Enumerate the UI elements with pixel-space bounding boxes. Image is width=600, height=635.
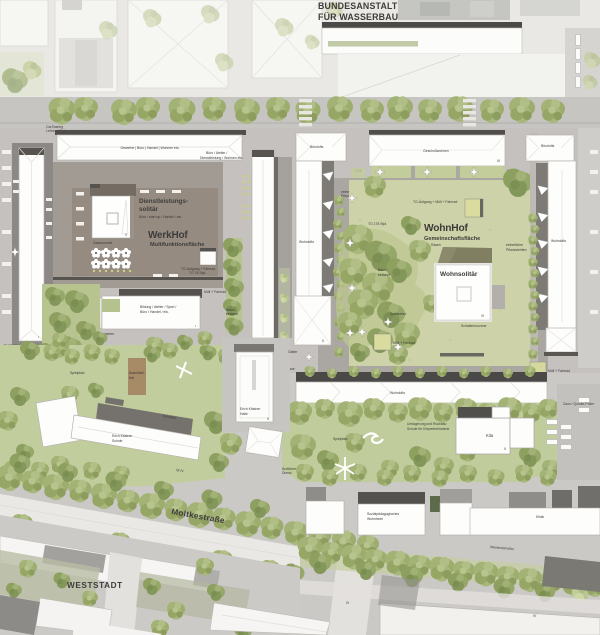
svg-text:WESTSTADT: WESTSTADT (67, 581, 123, 590)
svg-text:Bildung / Atelier / Sport /: Bildung / Atelier / Sport / (140, 305, 176, 309)
svg-text:solitär: solitär (139, 206, 158, 213)
svg-text:Spielwiese: Spielwiese (390, 312, 406, 316)
svg-text:Müll + Fahrrad: Müll + Fahrrad (548, 369, 570, 373)
svg-text:Halle: Halle (240, 412, 248, 416)
svg-text:WohnHof: WohnHof (424, 223, 468, 234)
svg-text:Erich Kästner: Erich Kästner (240, 407, 261, 411)
svg-text:Rasen: Rasen (431, 243, 441, 247)
svg-text:Baum-: Baum- (378, 268, 388, 272)
svg-text:Geschoßwohnen: Geschoßwohnen (423, 149, 449, 153)
svg-text:Schule für Körperbehinderte: Schule für Körperbehinderte (407, 427, 450, 431)
svg-text:Basketball-: Basketball- (129, 371, 145, 375)
svg-text:Dienst: Dienst (282, 471, 292, 475)
svg-text:TG 78 Stpl.: TG 78 Stpl. (189, 271, 206, 275)
svg-text:WerkHof: WerkHof (148, 230, 188, 241)
svg-text:Wohnsolitär: Wohnsolitär (440, 271, 478, 278)
svg-text:Klinik: Klinik (536, 515, 544, 519)
svg-text:Kita: Kita (486, 433, 494, 438)
svg-text:Spielplatz: Spielplatz (70, 371, 85, 375)
svg-text:Müll + Fahrrad: Müll + Fahrrad (204, 290, 226, 294)
svg-text:Dienstleistungs-: Dienstleistungs- (139, 198, 188, 205)
svg-text:Gemeinschaftsfläche: Gemeinschaftsfläche (424, 236, 480, 242)
svg-text:Pflanzstreifen: Pflanzstreifen (506, 248, 527, 252)
svg-text:Bürolofts: Bürolofts (310, 145, 324, 149)
svg-text:Wohnlofts: Wohnlofts (299, 240, 314, 244)
svg-text:TG 178 Stpl.: TG 178 Stpl. (368, 222, 387, 226)
svg-text:Schule: Schule (112, 439, 122, 443)
svg-text:BUNDESANSTALT: BUNDESANSTALT (318, 1, 398, 11)
svg-text:FÜR WASSERBAU: FÜR WASSERBAU (318, 12, 398, 22)
svg-text:Multifunktionsfläche: Multifunktionsfläche (150, 242, 204, 248)
svg-text:III: III (497, 159, 500, 163)
svg-text:II: II (504, 447, 506, 451)
svg-text:TG-Aufgang + Müll + Fahrrad: TG-Aufgang + Müll + Fahrrad (413, 200, 457, 204)
svg-text:Bürolofts: Bürolofts (541, 144, 555, 148)
svg-text:Umlagerung und Rückbau: Umlagerung und Rückbau (407, 422, 447, 426)
svg-text:Gastronomie: Gastronomie (93, 241, 113, 245)
svg-text:II: II (267, 417, 269, 421)
svg-text:Gatter: Gatter (288, 350, 298, 354)
svg-text:bestand: bestand (378, 273, 390, 277)
svg-text:Wohnlofts: Wohnlofts (551, 239, 566, 243)
svg-text:Dienstleistung / Wohnen etc.: Dienstleistung / Wohnen etc. (200, 156, 243, 160)
svg-text:Büro / start up / Handel / etc: Büro / start up / Handel / etc. (139, 215, 182, 219)
svg-text:Büro / Atelier /: Büro / Atelier / (206, 151, 227, 155)
svg-text:Schattenvorzone: Schattenvorzone (461, 324, 487, 328)
svg-text:bestand: bestand (226, 312, 238, 316)
svg-text:Gewerbe | Büro | Handel | Wohn: Gewerbe | Büro | Handel | Wohnen etc. (121, 146, 180, 150)
svg-text:feld: feld (129, 376, 134, 380)
svg-text:Sozialpädagogisches: Sozialpädagogisches (367, 512, 399, 516)
svg-text:einheitliche: einheitliche (506, 243, 523, 247)
svg-text:Wohnheim: Wohnheim (367, 517, 383, 521)
svg-text:Erich Kästner: Erich Kästner (112, 434, 133, 438)
svg-text:Zaun / Quinke-Poller: Zaun / Quinke-Poller (563, 402, 595, 406)
svg-text:Büro / Handel / etc.: Büro / Handel / etc. (140, 310, 169, 314)
svg-text:Müll + Fahrrad: Müll + Fahrrad (393, 341, 415, 345)
svg-text:Spielplatz: Spielplatz (333, 437, 348, 441)
svg-text:VI: VI (481, 314, 484, 318)
svg-text:II: II (322, 339, 324, 343)
svg-text:Wohnlofts: Wohnlofts (390, 391, 405, 395)
